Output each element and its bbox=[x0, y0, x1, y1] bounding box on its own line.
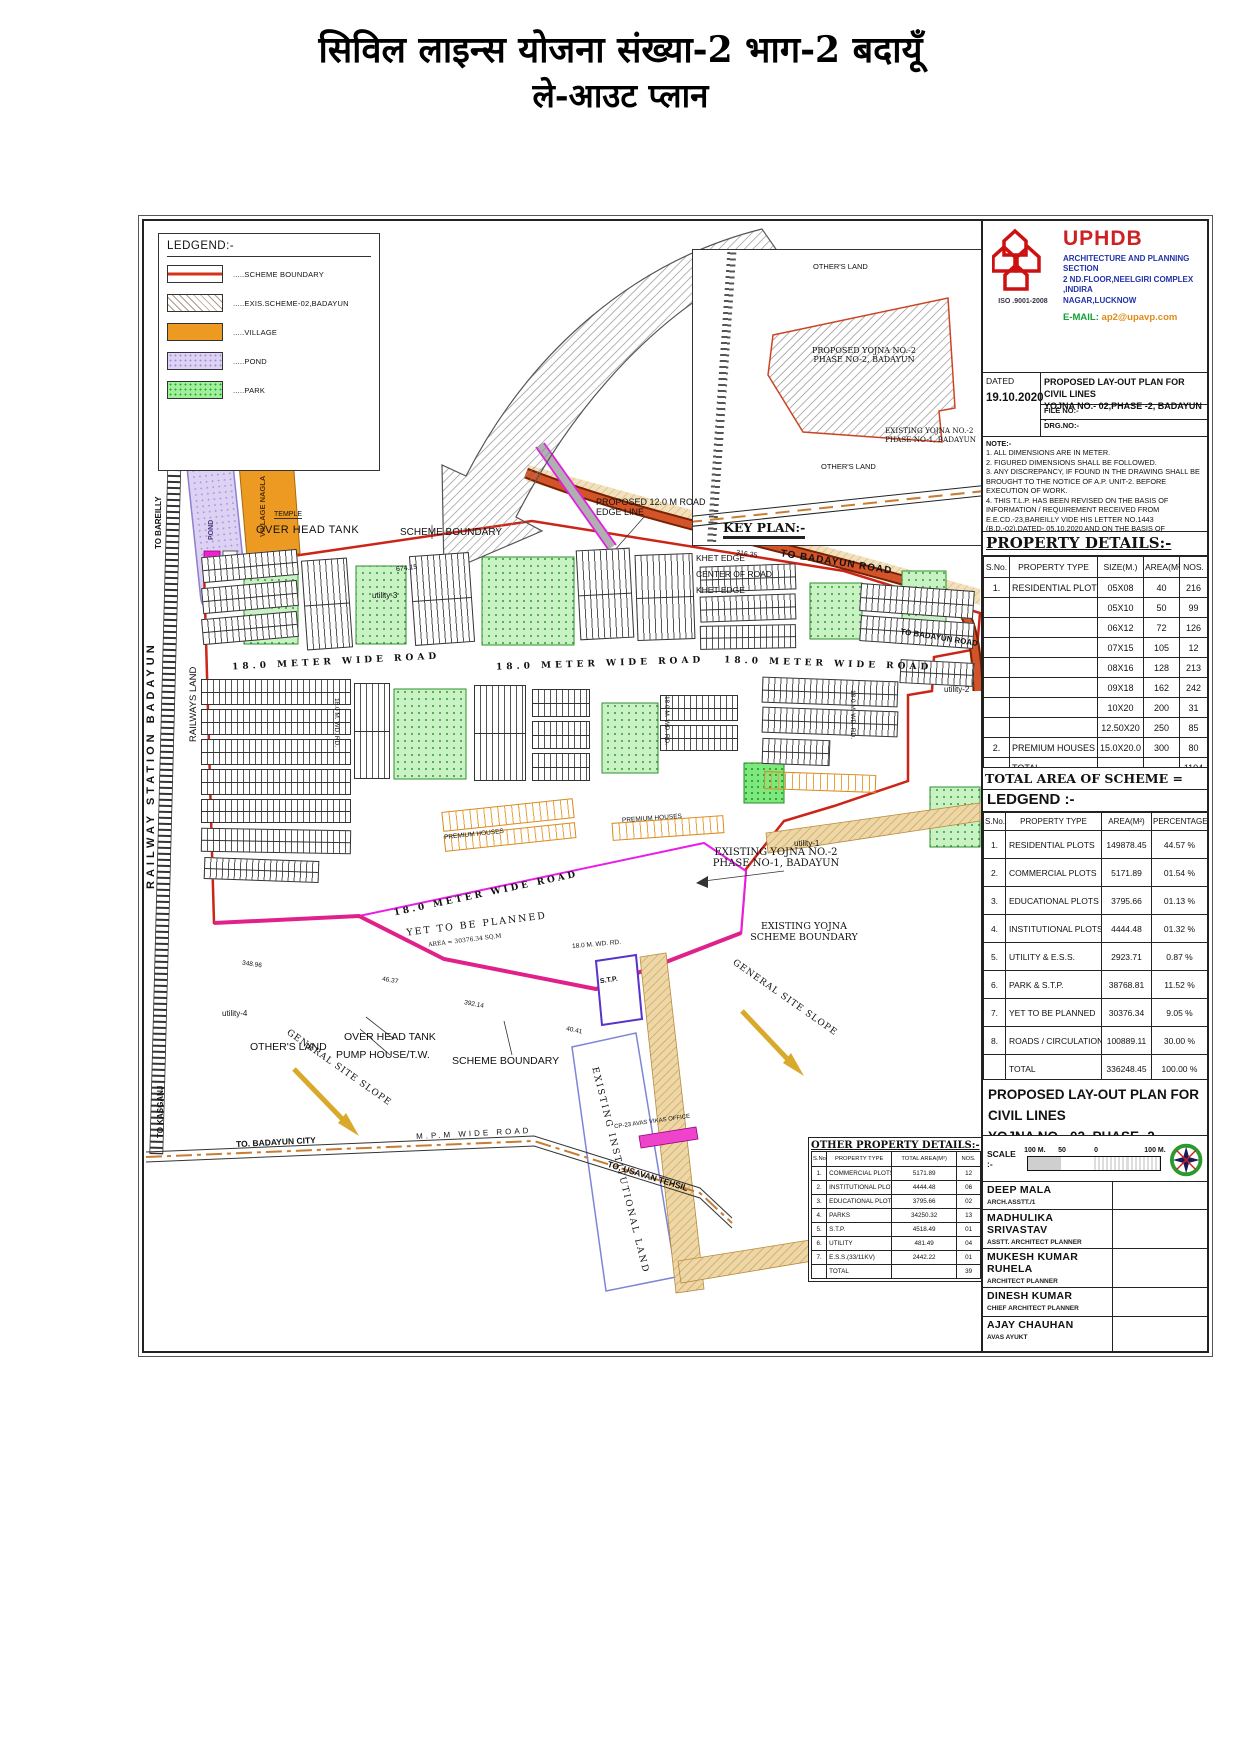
table-row: 5.S.T.P.4518.4901 bbox=[812, 1223, 981, 1237]
table-cell bbox=[1010, 698, 1098, 718]
table-cell: 2923.71 bbox=[1102, 943, 1152, 971]
table-cell: 01 bbox=[957, 1251, 981, 1265]
signature-space bbox=[1113, 1249, 1207, 1287]
table-cell: INSTITUTIONAL PLOTS bbox=[1006, 915, 1102, 943]
table-cell: 336248.45 bbox=[1102, 1055, 1152, 1081]
column-header: PERCENTAGE bbox=[1152, 813, 1208, 831]
table-cell bbox=[984, 638, 1010, 658]
table-row: 05X105099 bbox=[984, 598, 1208, 618]
table-cell: 105 bbox=[1144, 638, 1180, 658]
table-cell: INSTITUTIONAL PLOTS bbox=[827, 1181, 892, 1195]
note-item: 2. FIGURED DIMENSIONS SHALL BE FOLLOWED. bbox=[986, 458, 1204, 467]
drawing-frame-inner: OVER HEAD TANK SCHEME BOUNDARY PROPOSED … bbox=[142, 219, 1209, 1353]
uphdb-logo-area: ISO .9001-2008 bbox=[987, 227, 1059, 370]
table-cell: 162 bbox=[1144, 678, 1180, 698]
column-header: PROPERTY TYPE bbox=[827, 1152, 892, 1167]
note-block: NOTE:- 1. ALL DIMENSIONS ARE IN METER.2.… bbox=[983, 437, 1207, 532]
table-cell: 06X12 bbox=[1098, 618, 1144, 638]
table-cell bbox=[1010, 658, 1098, 678]
column-header: TOTAL AREA(M²) bbox=[892, 1152, 957, 1167]
legend-item-label: .....EXIS.SCHEME-02,BADAYUN bbox=[233, 299, 349, 308]
premium-plot-block bbox=[764, 771, 877, 793]
legend-item-label: .....POND bbox=[233, 357, 267, 366]
note-list: 1. ALL DIMENSIONS ARE IN METER.2. FIGURE… bbox=[986, 448, 1204, 532]
plot-block bbox=[660, 725, 738, 751]
existing-yojna-label: EXISTING YOJNA NO.-2 PHASE NO-1, BADAYUN bbox=[700, 847, 852, 869]
plot-block bbox=[474, 685, 526, 781]
table-cell: 4. bbox=[984, 915, 1006, 943]
plot-block bbox=[409, 552, 475, 646]
signatory-name: MADHULIKA SRIVASTAV bbox=[987, 1212, 1108, 1236]
table-cell: 1. bbox=[984, 578, 1010, 598]
property-details-table: S.No.PROPERTY TYPESIZE(M.)AREA(M²)NOS.1.… bbox=[983, 556, 1207, 768]
table-cell: EDUCATIONAL PLOTS bbox=[827, 1195, 892, 1209]
table-cell: 126 bbox=[1180, 618, 1208, 638]
plot-block bbox=[700, 624, 796, 650]
exis-scheme-swatch bbox=[167, 294, 223, 312]
table-cell: 300 bbox=[1144, 738, 1180, 758]
signatory-name: AJAY CHAUHAN bbox=[987, 1319, 1108, 1331]
to-bareilly-label: TO BAREILLY bbox=[154, 467, 163, 579]
table-cell: UTILITY bbox=[827, 1237, 892, 1251]
signatory-name: DEEP MALA bbox=[987, 1184, 1108, 1196]
table-row: TOTAL1104 bbox=[984, 758, 1208, 769]
scale-tick-left: 100 M. bbox=[1024, 1147, 1045, 1154]
plot-block bbox=[201, 739, 351, 765]
page-title-line2: ले-आउट प्लान bbox=[0, 75, 1241, 118]
table-cell: PREMIUM HOUSES bbox=[1010, 738, 1098, 758]
table-cell bbox=[1098, 758, 1144, 769]
table-cell: 05X10 bbox=[1098, 598, 1144, 618]
table-cell: 100889.11 bbox=[1102, 1027, 1152, 1055]
table-cell: E.S.S.(33/11KV) bbox=[827, 1251, 892, 1265]
table-cell: 2442.22 bbox=[892, 1251, 957, 1265]
table-row: 06X1272126 bbox=[984, 618, 1208, 638]
temple-label: TEMPLE bbox=[274, 511, 302, 519]
dated-label: DATED bbox=[986, 376, 1037, 386]
legend-box: LEDGEND:- .....SCHEME BOUNDARY.....EXIS.… bbox=[158, 233, 380, 471]
table-cell: 5171.89 bbox=[892, 1167, 957, 1181]
signatories-block: DEEP MALAARCH.ASSTT./1MADHULIKA SRIVASTA… bbox=[983, 1182, 1207, 1351]
signatory-info: MADHULIKA SRIVASTAVASSTT. ARCHITECT PLAN… bbox=[983, 1210, 1113, 1248]
table-cell: 85 bbox=[1180, 718, 1208, 738]
table-cell: PARKS bbox=[827, 1209, 892, 1223]
table-cell: 99 bbox=[1180, 598, 1208, 618]
table-cell: TOTAL bbox=[827, 1265, 892, 1279]
plot-block bbox=[700, 593, 797, 622]
table-cell: 13 bbox=[957, 1209, 981, 1223]
table-cell: 12 bbox=[1180, 638, 1208, 658]
legend-title: LEDGEND:- bbox=[167, 240, 371, 257]
table-cell: UTILITY & E.S.S. bbox=[1006, 943, 1102, 971]
other-property-details-table: S.No.PROPERTY TYPETOTAL AREA(M²)NOS.1.CO… bbox=[811, 1151, 981, 1279]
plot-block bbox=[201, 580, 299, 614]
signatory-row: MUKESH KUMAR RUHELAARCHITECT PLANNER bbox=[983, 1249, 1207, 1288]
table-cell: 242 bbox=[1180, 678, 1208, 698]
data-table: S.No.PROPERTY TYPETOTAL AREA(M²)NOS.1.CO… bbox=[811, 1151, 981, 1279]
keyplan-title: KEY PLAN:- bbox=[723, 520, 805, 539]
table-cell bbox=[1010, 678, 1098, 698]
table-row: TOTAL39 bbox=[812, 1265, 981, 1279]
table-row: 10X2020031 bbox=[984, 698, 1208, 718]
iso-label: ISO .9001-2008 bbox=[987, 298, 1059, 305]
table-cell bbox=[1010, 638, 1098, 658]
keyplan-proposed-label: PROPOSED YOJNA NO.-2 PHASE NO-2, BADAYUN bbox=[789, 346, 939, 364]
scale-bar: 100 M. 50 0 100 M. bbox=[1027, 1156, 1161, 1171]
table-row: 4.INSTITUTIONAL PLOTS4444.4801.32 % bbox=[984, 915, 1208, 943]
table-cell: 7. bbox=[984, 999, 1006, 1027]
table-cell bbox=[984, 718, 1010, 738]
column-header: SIZE(M.) bbox=[1098, 557, 1144, 578]
table-cell: 3795.66 bbox=[892, 1195, 957, 1209]
keyplan-existing-label: EXISTING YOJNA NO.-2 PHASE NO-1, BADAYUN bbox=[885, 426, 977, 444]
signature-space bbox=[1113, 1182, 1207, 1209]
table-cell: 4518.49 bbox=[892, 1223, 957, 1237]
uphdb-logo-icon bbox=[992, 227, 1054, 291]
khet-edge-label-2: KHET EDGE bbox=[696, 585, 745, 595]
table-cell: 5. bbox=[812, 1223, 827, 1237]
table-cell: 6. bbox=[812, 1237, 827, 1251]
table-cell: TOTAL bbox=[1006, 1055, 1102, 1081]
table-row: 2.COMMERCIAL PLOTS5171.8901.54 % bbox=[984, 859, 1208, 887]
plot-block bbox=[635, 553, 696, 641]
table-cell: 39 bbox=[957, 1265, 981, 1279]
pond-swatch bbox=[167, 352, 223, 370]
other-property-details-title: OTHER PROPERTY DETAILS:- bbox=[811, 1140, 981, 1151]
table-cell bbox=[984, 618, 1010, 638]
table-cell: 50 bbox=[1144, 598, 1180, 618]
table-row: 07X1510512 bbox=[984, 638, 1208, 658]
keyplan-others-land-bottom: OTHER'S LAND bbox=[821, 462, 876, 471]
title-block-panel: ISO .9001-2008 UPHDB ARCHITECTURE AND PL… bbox=[981, 221, 1207, 1351]
table-cell: 2. bbox=[812, 1181, 827, 1195]
table-cell bbox=[984, 678, 1010, 698]
scale-tick-0: 0 bbox=[1094, 1147, 1098, 1154]
signatory-row: MADHULIKA SRIVASTAVASSTT. ARCHITECT PLAN… bbox=[983, 1210, 1207, 1249]
key-plan-box: OTHER'S LAND PROPOSED YOJNA NO.-2 PHASE … bbox=[692, 249, 984, 546]
plot-block bbox=[201, 709, 351, 735]
table-cell: 4. bbox=[812, 1209, 827, 1223]
signatory-info: MUKESH KUMAR RUHELAARCHITECT PLANNER bbox=[983, 1249, 1113, 1287]
table-row: 2.INSTITUTIONAL PLOTS4444.4806 bbox=[812, 1181, 981, 1195]
table-cell: 04 bbox=[957, 1237, 981, 1251]
plot-block bbox=[532, 753, 590, 781]
scale-label: SCALE :- bbox=[987, 1149, 1022, 1169]
signatory-info: AJAY CHAUHANAVAS AYUKT bbox=[983, 1317, 1113, 1351]
table-cell: ROADS / CIRCULATION bbox=[1006, 1027, 1102, 1055]
table-row: 8.ROADS / CIRCULATION100889.1130.00 % bbox=[984, 1027, 1208, 1055]
plot-block bbox=[354, 683, 390, 779]
property-details-title: PROPERTY DETAILS:- bbox=[983, 532, 1207, 556]
table-cell: 40 bbox=[1144, 578, 1180, 598]
table-cell bbox=[892, 1265, 957, 1279]
dated-cell: DATED 19.10.2020 bbox=[983, 373, 1041, 436]
drg-no-label: DRG.NO:- bbox=[1041, 420, 1207, 435]
scale-tick-50: 50 bbox=[1058, 1147, 1066, 1154]
column-header: PROPERTY TYPE bbox=[1010, 557, 1098, 578]
table-cell: 30.00 % bbox=[1152, 1027, 1208, 1055]
table-row: 4.PARKS34250.3213 bbox=[812, 1209, 981, 1223]
signatory-row: AJAY CHAUHANAVAS AYUKT bbox=[983, 1317, 1207, 1351]
table-cell: 216 bbox=[1180, 578, 1208, 598]
plot-block bbox=[576, 548, 635, 641]
table-cell: 128 bbox=[1144, 658, 1180, 678]
existing-scheme-boundary-label: EXISTING YOJNA SCHEME BOUNDARY bbox=[742, 921, 866, 943]
scale-tick-right: 100 M. bbox=[1144, 1147, 1165, 1154]
table-cell: PARK & S.T.P. bbox=[1006, 971, 1102, 999]
table-row: 1.RESIDENTIAL PLOTS149878.4544.57 % bbox=[984, 831, 1208, 859]
other-property-details: OTHER PROPERTY DETAILS:- S.No.PROPERTY T… bbox=[808, 1137, 984, 1282]
plot-block bbox=[660, 695, 738, 721]
layout-plan-sheet: सिविल लाइन्स योजना संख्या-2 भाग-2 बदायूँ… bbox=[0, 0, 1241, 1755]
table-cell: 05X08 bbox=[1098, 578, 1144, 598]
signature-space bbox=[1113, 1210, 1207, 1248]
over-head-tank-2-label: OVER HEAD TANK bbox=[344, 1031, 436, 1043]
road-18m-short-3: 18.0 M. WD. RD. bbox=[849, 690, 856, 739]
legend-item-park: .....PARK bbox=[167, 381, 371, 399]
table-cell: 213 bbox=[1180, 658, 1208, 678]
utility3-label: utility-3 bbox=[372, 591, 397, 600]
railways-land-label: RAILWAYS LAND bbox=[188, 633, 199, 775]
dated-value: 19.10.2020 bbox=[986, 392, 1037, 404]
table-cell: 09X18 bbox=[1098, 678, 1144, 698]
table-row: 6.PARK & S.T.P.38768.8111.52 % bbox=[984, 971, 1208, 999]
table-row: 08X16128213 bbox=[984, 658, 1208, 678]
column-header: NOS. bbox=[957, 1152, 981, 1167]
table-cell: 3795.66 bbox=[1102, 887, 1152, 915]
pump-house-label: PUMP HOUSE/T.W. bbox=[336, 1049, 430, 1061]
proposed-road-label: PROPOSED 12.0 M ROAD EDGE LINE bbox=[596, 497, 706, 517]
legend-item-label: .....VILLAGE bbox=[233, 328, 277, 337]
table-cell: 44.57 % bbox=[1152, 831, 1208, 859]
plot-block bbox=[532, 721, 590, 749]
drawing-title-cell: PROPOSED LAY-OUT PLAN FOR CIVIL LINES YO… bbox=[1041, 373, 1207, 436]
table-cell: 4444.48 bbox=[892, 1181, 957, 1195]
table-cell bbox=[812, 1265, 827, 1279]
column-header: PROPERTY TYPE bbox=[1006, 813, 1102, 831]
legend-rows: .....SCHEME BOUNDARY.....EXIS.SCHEME-02,… bbox=[167, 265, 371, 399]
road-18m-short-1: 18.0 M. WD. RD. bbox=[333, 698, 340, 747]
table-cell bbox=[1010, 718, 1098, 738]
village-swatch bbox=[167, 323, 223, 341]
column-header: NOS. bbox=[1180, 557, 1208, 578]
table-cell: S.T.P. bbox=[827, 1223, 892, 1237]
signatory-row: DINESH KUMARCHIEF ARCHITECT PLANNER bbox=[983, 1288, 1207, 1316]
table-cell bbox=[1144, 758, 1180, 769]
org-address: ARCHITECTURE AND PLANNING SECTION 2 ND.F… bbox=[1063, 254, 1203, 306]
drawing-caption: PROPOSED LAY-OUT PLAN FOR CIVIL LINES YO… bbox=[983, 1080, 1207, 1136]
table-cell: 1. bbox=[812, 1167, 827, 1181]
table-cell bbox=[984, 698, 1010, 718]
railway-station-label: RAILWAY STATION BADAYUN bbox=[145, 619, 157, 911]
table-cell: 12 bbox=[957, 1167, 981, 1181]
table-cell: 01.54 % bbox=[1152, 859, 1208, 887]
table-cell: 2. bbox=[984, 738, 1010, 758]
table-cell: 01.13 % bbox=[1152, 887, 1208, 915]
table-cell: 3. bbox=[984, 887, 1006, 915]
table-row: 2.PREMIUM HOUSES15.0X20.030080 bbox=[984, 738, 1208, 758]
uphdb-block: ISO .9001-2008 UPHDB ARCHITECTURE AND PL… bbox=[983, 221, 1207, 373]
table-cell: 0.87 % bbox=[1152, 943, 1208, 971]
table-row: 7.YET TO BE PLANNED30376.349.05 % bbox=[984, 999, 1208, 1027]
table-cell: 149878.45 bbox=[1102, 831, 1152, 859]
legend-item-label: .....SCHEME BOUNDARY bbox=[233, 270, 324, 279]
table-cell: 15.0X20.0 bbox=[1098, 738, 1144, 758]
table-cell: 4444.48 bbox=[1102, 915, 1152, 943]
table-cell: RESIDENTIAL PLOTS bbox=[1010, 578, 1098, 598]
table-cell: 08X16 bbox=[1098, 658, 1144, 678]
page-title-line1: सिविल लाइन्स योजना संख्या-2 भाग-2 बदायूँ bbox=[0, 26, 1241, 75]
pond-label: POND bbox=[208, 489, 215, 571]
table-cell: 12.50X20 bbox=[1098, 718, 1144, 738]
email-label: E-MAIL: bbox=[1063, 312, 1099, 323]
table-cell: 80 bbox=[1180, 738, 1208, 758]
note-item: 1. ALL DIMENSIONS ARE IN METER. bbox=[986, 448, 1204, 457]
plot-block bbox=[201, 769, 351, 795]
table-cell: 9.05 % bbox=[1152, 999, 1208, 1027]
legend-item-village: .....VILLAGE bbox=[167, 323, 371, 341]
note-item: 4. THIS T.L.P. HAS BEEN REVISED ON THE B… bbox=[986, 496, 1204, 532]
scheme-boundary-swatch bbox=[167, 265, 223, 283]
signatory-info: DINESH KUMARCHIEF ARCHITECT PLANNER bbox=[983, 1288, 1113, 1315]
over-head-tank-label: OVER HEAD TANK bbox=[256, 524, 359, 536]
table-row: 5.UTILITY & E.S.S.2923.710.87 % bbox=[984, 943, 1208, 971]
ledgend-title: LEDGEND :- bbox=[983, 790, 1207, 812]
table-row: 1.COMMERCIAL PLOTS5171.8912 bbox=[812, 1167, 981, 1181]
table-cell: 30376.34 bbox=[1102, 999, 1152, 1027]
table-cell: 7. bbox=[812, 1251, 827, 1265]
table-row: 09X18162242 bbox=[984, 678, 1208, 698]
legend-item-pond: .....POND bbox=[167, 352, 371, 370]
legend-item-label: .....PARK bbox=[233, 386, 265, 395]
table-row: 3.EDUCATIONAL PLOTS3795.6602 bbox=[812, 1195, 981, 1209]
table-row: TOTAL336248.45100.00 % bbox=[984, 1055, 1208, 1081]
table-cell: 10X20 bbox=[1098, 698, 1144, 718]
park-swatch bbox=[167, 381, 223, 399]
compass-icon bbox=[1169, 1142, 1203, 1178]
table-cell: 200 bbox=[1144, 698, 1180, 718]
column-header: S.No. bbox=[812, 1152, 827, 1167]
table-cell: 07X15 bbox=[1098, 638, 1144, 658]
table-cell bbox=[984, 758, 1010, 769]
table-row: 1.RESIDENTIAL PLOTS05X0840216 bbox=[984, 578, 1208, 598]
table-cell bbox=[1010, 598, 1098, 618]
column-header: S.No. bbox=[984, 813, 1006, 831]
table-cell: 06 bbox=[957, 1181, 981, 1195]
scheme-boundary-label: SCHEME BOUNDARY bbox=[400, 527, 502, 538]
drawing-title: PROPOSED LAY-OUT PLAN FOR CIVIL LINES YO… bbox=[1041, 373, 1207, 405]
table-row: 12.50X2025085 bbox=[984, 718, 1208, 738]
table-cell: YET TO BE PLANNED bbox=[1006, 999, 1102, 1027]
table-cell: 3. bbox=[812, 1195, 827, 1209]
utility2-label: utility-2 bbox=[944, 685, 969, 694]
table-cell: RESIDENTIAL PLOTS bbox=[1006, 831, 1102, 859]
table-cell: 2. bbox=[984, 859, 1006, 887]
column-header: AREA(M²) bbox=[1102, 813, 1152, 831]
uphdb-text: UPHDB ARCHITECTURE AND PLANNING SECTION … bbox=[1059, 227, 1203, 370]
signature-space bbox=[1113, 1288, 1207, 1315]
signatory-row: DEEP MALAARCH.ASSTT./1 bbox=[983, 1182, 1207, 1210]
plot-block bbox=[762, 707, 899, 738]
table-row: 7.E.S.S.(33/11KV)2442.2201 bbox=[812, 1251, 981, 1265]
signatory-title: ARCH.ASSTT./1 bbox=[987, 1199, 1108, 1206]
table-cell: 1104 bbox=[1180, 758, 1208, 769]
signature-space bbox=[1113, 1317, 1207, 1351]
drawing-frame: OVER HEAD TANK SCHEME BOUNDARY PROPOSED … bbox=[138, 215, 1213, 1357]
table-cell: 5171.89 bbox=[1102, 859, 1152, 887]
scale-block: SCALE :- 100 M. 50 0 100 M. bbox=[983, 1136, 1207, 1182]
table-cell: 250 bbox=[1144, 718, 1180, 738]
keyplan-others-land-top: OTHER'S LAND bbox=[813, 262, 868, 271]
signatory-name: MUKESH KUMAR RUHELA bbox=[987, 1251, 1108, 1275]
signatory-title: CHIEF ARCHITECT PLANNER bbox=[987, 1305, 1108, 1312]
plot-block bbox=[201, 828, 351, 855]
table-cell: TOTAL bbox=[1010, 758, 1098, 769]
legend-item-exis-scheme: .....EXIS.SCHEME-02,BADAYUN bbox=[167, 294, 371, 312]
note-item: 3. ANY DISCREPANCY, IF FOUND IN THE DRAW… bbox=[986, 467, 1204, 495]
table-cell: 11.52 % bbox=[1152, 971, 1208, 999]
to-kasganj-label: TO KASGANJ bbox=[156, 1061, 165, 1163]
ledgend-table: S.No.PROPERTY TYPEAREA(M²)PERCENTAGE1.RE… bbox=[983, 812, 1207, 1080]
table-cell: COMMERCIAL PLOTS bbox=[827, 1167, 892, 1181]
signatory-title: ASSTT. ARCHITECT PLANNER bbox=[987, 1239, 1108, 1246]
email-line: E-MAIL: ap2@upavp.com bbox=[1063, 312, 1203, 323]
plot-block bbox=[301, 558, 353, 651]
center-of-road-label: CENTER OF ROAD bbox=[696, 569, 772, 579]
data-table: S.No.PROPERTY TYPEAREA(M²)PERCENTAGE1.RE… bbox=[983, 812, 1207, 1080]
total-area-line: TOTAL AREA OF SCHEME = 336248.45 SQ.MT bbox=[983, 768, 1207, 790]
data-table: S.No.PROPERTY TYPESIZE(M.)AREA(M²)NOS.1.… bbox=[983, 556, 1207, 768]
table-row: 3.EDUCATIONAL PLOTS3795.6601.13 % bbox=[984, 887, 1208, 915]
legend-item-scheme-boundary: .....SCHEME BOUNDARY bbox=[167, 265, 371, 283]
table-cell: 1. bbox=[984, 831, 1006, 859]
scheme-boundary-2-label: SCHEME BOUNDARY bbox=[452, 1055, 559, 1067]
table-cell bbox=[984, 658, 1010, 678]
table-cell: 6. bbox=[984, 971, 1006, 999]
table-cell: COMMERCIAL PLOTS bbox=[1006, 859, 1102, 887]
table-cell bbox=[984, 598, 1010, 618]
page-title: सिविल लाइन्स योजना संख्या-2 भाग-2 बदायूँ… bbox=[0, 26, 1241, 117]
table-row: 6.UTILITY481.4904 bbox=[812, 1237, 981, 1251]
dated-block: DATED 19.10.2020 PROPOSED LAY-OUT PLAN F… bbox=[983, 373, 1207, 437]
table-cell: 5. bbox=[984, 943, 1006, 971]
table-cell: 31 bbox=[1180, 698, 1208, 718]
plot-block bbox=[859, 583, 975, 619]
signatory-title: ARCHITECT PLANNER bbox=[987, 1278, 1108, 1285]
plot-block bbox=[762, 738, 831, 766]
table-cell: 38768.81 bbox=[1102, 971, 1152, 999]
signatory-info: DEEP MALAARCH.ASSTT./1 bbox=[983, 1182, 1113, 1209]
column-header: AREA(M²) bbox=[1144, 557, 1180, 578]
column-header: S.No. bbox=[984, 557, 1010, 578]
table-cell: 8. bbox=[984, 1027, 1006, 1055]
plot-block bbox=[204, 857, 320, 883]
road-18m-short-2: 18.0 M. WD. RD. bbox=[663, 696, 670, 745]
note-title: NOTE:- bbox=[986, 439, 1204, 448]
plot-block bbox=[762, 677, 899, 708]
table-cell: 02 bbox=[957, 1195, 981, 1209]
table-cell: EDUCATIONAL PLOTS bbox=[1006, 887, 1102, 915]
org-name: UPHDB bbox=[1063, 227, 1203, 251]
plot-block bbox=[201, 611, 299, 645]
table-cell bbox=[1010, 618, 1098, 638]
signatory-title: AVAS AYUKT bbox=[987, 1334, 1108, 1341]
utility4-label: utility-4 bbox=[222, 1009, 247, 1018]
signatory-name: DINESH KUMAR bbox=[987, 1290, 1108, 1302]
table-cell: 01.32 % bbox=[1152, 915, 1208, 943]
plot-block bbox=[201, 549, 299, 583]
plot-block bbox=[201, 679, 351, 705]
